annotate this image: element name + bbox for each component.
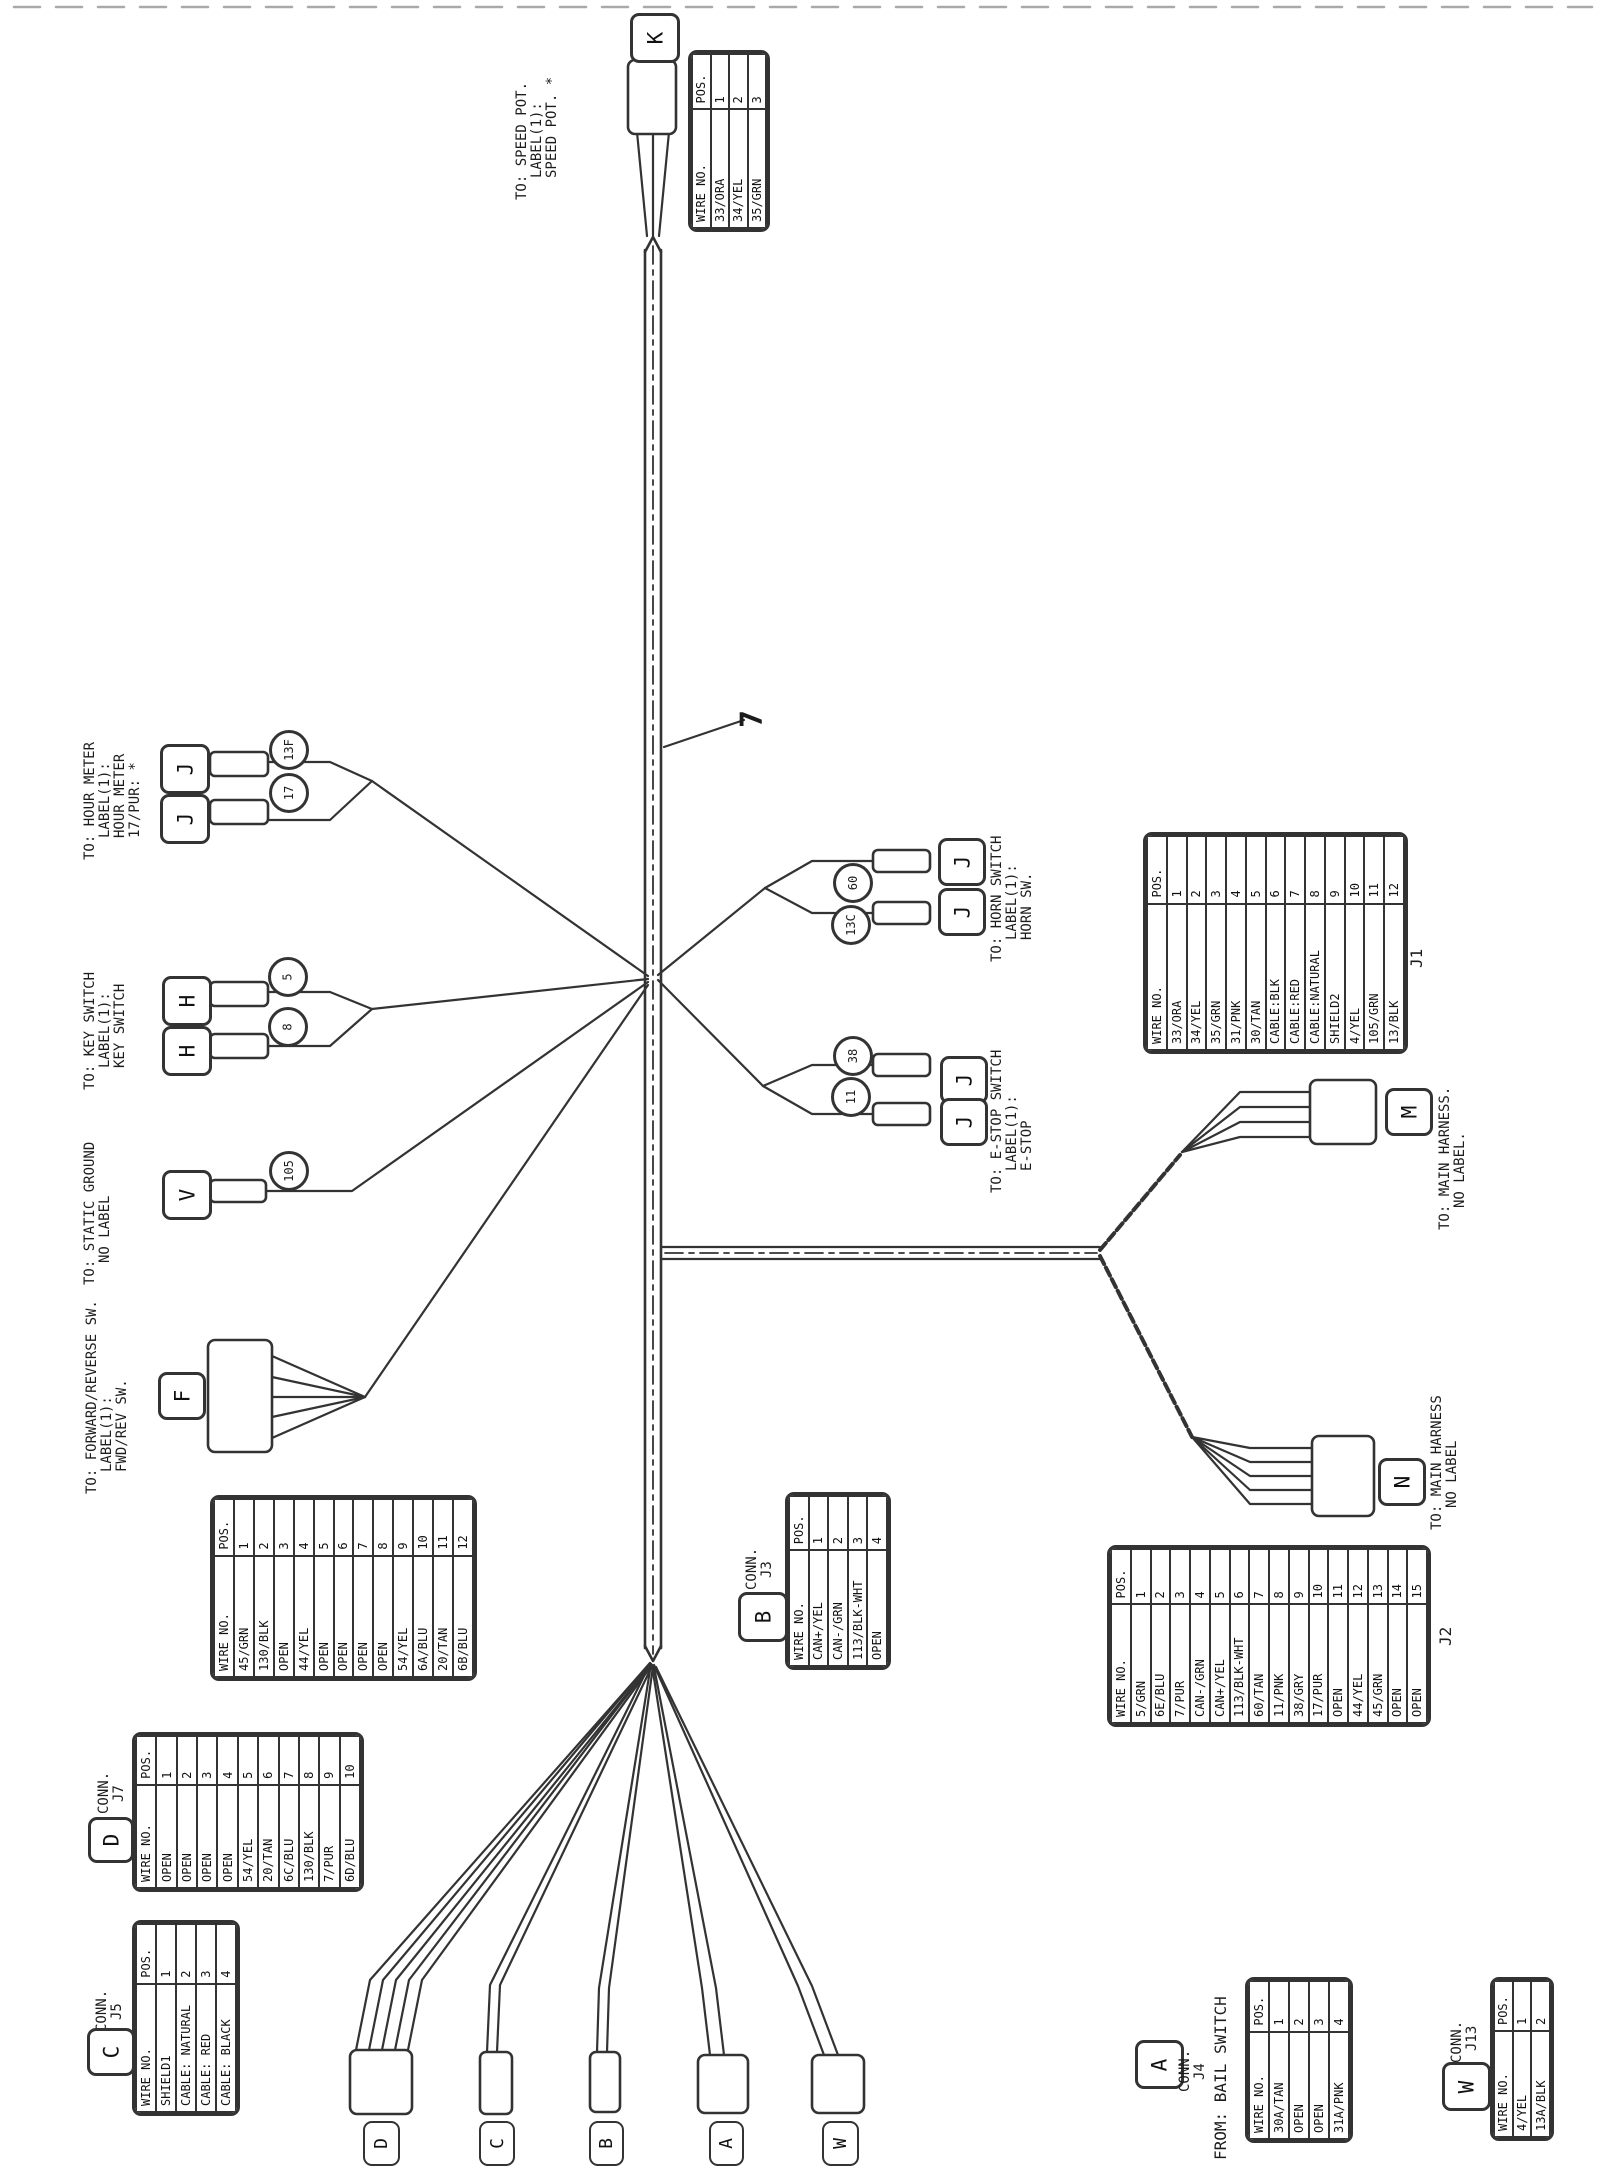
connector-b-body <box>590 2052 620 2112</box>
ring-terminal-17: 17 <box>269 773 309 813</box>
j1-table-title: J1 <box>1408 918 1436 968</box>
wire-table-cell: 9 <box>1289 1549 1309 1604</box>
label-line: TO: STATIC GROUND <box>83 1120 98 1285</box>
wire-table-cell: 20/TAN <box>258 1785 278 1888</box>
connector-letter: W <box>830 2138 851 2149</box>
connector-box-h-2: H <box>162 1026 212 1076</box>
main-harness-n-label: TO: MAIN HARNESSNO LABEL <box>1430 1342 1472 1530</box>
wire-table-cell: 13 <box>1368 1549 1388 1604</box>
wire-table-cell: 7 <box>353 1499 373 1556</box>
horn-branch <box>658 850 930 975</box>
k-wires <box>637 132 669 236</box>
wire-table-header-cell: WIRE NO. <box>136 1785 156 1888</box>
connector-letter: A <box>1148 2058 1172 2071</box>
key-switch-label: TO: KEY SWITCHLABEL(1):KEY SWITCH <box>83 932 135 1090</box>
wire-table-cell: 4 <box>294 1499 314 1556</box>
connector-letter: M <box>1397 1106 1421 1119</box>
wire-table-cell: 2 <box>1531 1981 1550 2031</box>
connector-letter: H <box>175 1045 199 1058</box>
wire-table-cell: 7 <box>279 1736 299 1785</box>
wire-table-cell: 30A/TAN <box>1269 2032 1289 2139</box>
n-connector-body <box>1312 1436 1374 1516</box>
wire-table-cell: 4/YEL <box>1345 904 1365 1050</box>
wire-table-header-cell: WIRE NO. <box>1147 904 1167 1050</box>
wire-table-header-cell: POS. <box>136 1924 156 1984</box>
wire-table-cell: 45/GRN <box>234 1556 254 1677</box>
connector-letter: J <box>952 1116 976 1129</box>
wire-table-cell: 11 <box>1364 836 1384 904</box>
wire-table-cell: 1 <box>1167 836 1187 904</box>
wire-table-cell: 11 <box>433 1499 453 1556</box>
wire-table-cell: CAN+/YEL <box>1210 1604 1230 1723</box>
connector-letter: A <box>716 2138 737 2149</box>
fwd-rev-branch <box>272 985 648 1438</box>
conn-j3-label: CONN.J3 <box>745 1524 779 1590</box>
label-line: J7 <box>112 1750 127 1814</box>
label-line: TO: MAIN HARNESS <box>1430 1342 1445 1530</box>
label-line: FWD/REV SW. <box>115 1292 130 1494</box>
wire-table-cell: 6 <box>1266 836 1286 904</box>
connector-box-f: F <box>158 1372 206 1420</box>
label-line: NO LABEL <box>1445 1342 1460 1530</box>
wire-table-cell: CABLE:BLK <box>1266 904 1286 1050</box>
wire-table-cell: 4/YEL <box>1513 2031 1532 2137</box>
wire-table-header-cell: POS. <box>1249 1981 1269 2032</box>
fwd-rev-label: TO: FORWARD/REVERSE SW.LABEL(1):FWD/REV … <box>85 1292 137 1494</box>
wire-table-cell: 1 <box>1269 1981 1289 2032</box>
bottom-connector-label-a: A <box>709 2121 744 2166</box>
wire-table-cell: 33/ORA <box>1167 904 1187 1050</box>
wire-table-header-cell: WIRE NO. <box>789 1550 809 1666</box>
wire-table-cell: 8 <box>1305 836 1325 904</box>
label-line: CONN. <box>95 1968 110 2032</box>
wire-table-cell: OPEN <box>867 1550 887 1666</box>
wire-table-header-cell: POS. <box>136 1736 156 1785</box>
wire-table-header-cell: WIRE NO. <box>136 1984 156 2112</box>
wire-table-cell: 1 <box>1131 1549 1151 1604</box>
label-line: LABEL(1): <box>98 702 113 860</box>
label-line: CONN. <box>1450 1995 1465 2063</box>
j7-wire-table: WIRE NO.POS.OPEN1OPEN2OPEN3OPEN454/YEL52… <box>132 1732 364 1892</box>
wire-table-cell: 45/GRN <box>1368 1604 1388 1723</box>
wire-table-cell: 4 <box>1226 836 1246 904</box>
wire-table-cell: OPEN <box>156 1785 176 1888</box>
ring-number: 105 <box>282 1160 296 1182</box>
wire-table-cell: OPEN <box>1328 1604 1348 1723</box>
label-line: SPEED POT. * <box>545 30 560 200</box>
wire-table-cell: 7/PUR <box>319 1785 339 1888</box>
wire-table-cell: 10 <box>1345 836 1365 904</box>
wire-table-cell: 5 <box>238 1736 258 1785</box>
wire-table-cell: 54/YEL <box>238 1785 258 1888</box>
wire-table-cell: 6B/BLU <box>453 1556 473 1677</box>
ring-number: 17 <box>282 786 296 800</box>
wire-table-header-cell: WIRE NO. <box>1494 2031 1513 2137</box>
connector-box-n: N <box>1378 1458 1426 1506</box>
ring-number: 8 <box>281 1023 295 1030</box>
wire-table-header-cell: POS. <box>1494 1981 1513 2031</box>
connector-letter: K <box>643 32 667 45</box>
label-line: J5 <box>110 1968 125 2032</box>
wire-table-cell: CABLE: NATURAL <box>176 1984 196 2112</box>
wire-table-cell: 3 <box>1170 1549 1190 1604</box>
wire-table: WIRE NO.POS.30A/TAN1OPEN2OPEN331A/PNK4 <box>1248 1980 1350 2140</box>
wire-table-cell: 3 <box>196 1924 216 1984</box>
wire-table-cell: 5 <box>1210 1549 1230 1604</box>
bottom-fan <box>356 1663 838 2055</box>
connector-letter: B <box>751 1611 775 1624</box>
wire-table-cell: 12 <box>1384 836 1404 904</box>
wire-table-cell: 3 <box>1206 836 1226 904</box>
bottom-connector-bodies <box>350 2050 864 2114</box>
wire-table-cell: CABLE:RED <box>1285 904 1305 1050</box>
connector-box-j-horn-2: J <box>938 888 986 936</box>
wire-table-cell: SHIELD1 <box>156 1984 176 2112</box>
wire-table-cell: 2 <box>828 1496 848 1550</box>
label-line: TO: MAIN HARNESS. <box>1438 1025 1453 1230</box>
wire-table-cell: 35/GRN <box>1206 904 1226 1050</box>
connector-w-body <box>812 2055 864 2113</box>
wire-table-cell: 12 <box>1348 1549 1368 1604</box>
ring-number: 11 <box>844 1090 858 1104</box>
hour-meter-label: TO: HOUR METERLABEL(1):HOUR METER17/PUR:… <box>83 702 149 860</box>
label-line: CONN. <box>97 1750 112 1814</box>
wire-table-cell: 3 <box>1309 1981 1329 2032</box>
bottom-connector-label-c: C <box>479 2121 515 2166</box>
wire-table-cell: 6E/BLU <box>1151 1604 1171 1723</box>
m-connector-body <box>1310 1080 1376 1144</box>
label-line: E-STOP <box>1020 1048 1035 1193</box>
wire-table: WIRE NO.POS.33/ORA134/YEL235/GRN3 <box>691 53 767 229</box>
wire-table-cell: 2 <box>1289 1981 1309 2032</box>
wire-table-cell: CABLE: RED <box>196 1984 216 2112</box>
wire-table-cell: 17/PUR <box>1309 1604 1329 1723</box>
label-line: LABEL(1): <box>1005 812 1020 962</box>
wire-table-cell: 3 <box>197 1736 217 1785</box>
wire-table-cell: OPEN <box>274 1556 294 1677</box>
wire-table-cell: CAN-/GRN <box>1190 1604 1210 1723</box>
wire-table-cell: 31A/PNK <box>1329 2032 1349 2139</box>
wire-table-cell: 60/TAN <box>1249 1604 1269 1723</box>
wire-table-cell: 4 <box>1190 1549 1210 1604</box>
connector-a-body <box>698 2055 748 2113</box>
wire-table-cell: 2 <box>1151 1549 1171 1604</box>
k-connector-body <box>628 60 676 134</box>
wire-table-cell: OPEN <box>334 1556 354 1677</box>
main-harness-m-label: TO: MAIN HARNESS.NO LABEL. <box>1438 1025 1480 1230</box>
connector-letter: W <box>1455 2080 1479 2093</box>
connector-box-j-hour-meter-1: J <box>160 744 210 794</box>
wire-table-cell: 1 <box>234 1499 254 1556</box>
wire-table-cell: 35/GRN <box>748 109 767 228</box>
wire-table-cell: 4 <box>867 1496 887 1550</box>
wire-table-cell: 10 <box>413 1499 433 1556</box>
label-line: TO: HOUR METER <box>83 702 98 860</box>
connector-letter: D <box>371 2138 392 2149</box>
label-line: TO: FORWARD/REVERSE SW. <box>85 1292 100 1494</box>
wire-table-cell: OPEN <box>177 1785 197 1888</box>
label-line: TO: SPEED POT. <box>515 30 530 200</box>
wire-table-cell: OPEN <box>314 1556 334 1677</box>
static-ground-label: TO: STATIC GROUNDNO LABEL <box>83 1120 123 1285</box>
label-line: HOUR METER <box>113 702 128 860</box>
wire-table-cell: 7 <box>1285 836 1305 904</box>
ring-number: 38 <box>846 1049 860 1063</box>
wire-table-cell: 113/BLK-WHT <box>1230 1604 1250 1723</box>
j13-wire-table: WIRE NO.POS.4/YEL113A/BLK2 <box>1490 1977 1554 2141</box>
wire-table-cell: 6 <box>334 1499 354 1556</box>
conn-j5-label: CONN.J5 <box>95 1968 129 2032</box>
f-connector-body <box>208 1340 272 1452</box>
wire-table-cell: SHIELD2 <box>1325 904 1345 1050</box>
label-line: LABEL(1): <box>98 932 113 1090</box>
wire-table-cell: OPEN <box>1388 1604 1408 1723</box>
wire-table-cell: OPEN <box>217 1785 237 1888</box>
ring-number: 13C <box>844 914 858 936</box>
wire-table-cell: 11/PNK <box>1269 1604 1289 1723</box>
wire-table-cell: OPEN <box>1289 2032 1309 2139</box>
speed-pot-label: TO: SPEED POT.LABEL(1):SPEED POT. * <box>515 30 610 200</box>
connector-letter: J <box>173 763 197 776</box>
wire-table-cell: 12 <box>453 1499 473 1556</box>
estop-branch <box>658 980 930 1125</box>
ring-terminal-38: 38 <box>833 1036 873 1076</box>
connector-box-j-horn-1: J <box>938 838 986 886</box>
j3-wire-table: WIRE NO.POS.CAN+/YEL1CAN-/GRN2113/BLK-WH… <box>785 1492 891 1670</box>
wire-table-cell: 44/YEL <box>294 1556 314 1677</box>
label-line: LABEL(1): <box>530 30 545 200</box>
wire-table-cell: 10 <box>1309 1549 1329 1604</box>
conn-j4-label: CONN.J4 <box>1178 2028 1212 2092</box>
ring-terminal-105: 105 <box>269 1151 309 1191</box>
wire-table-header-cell: POS. <box>1111 1549 1131 1604</box>
wire-table-cell: 4 <box>1329 1981 1349 2032</box>
connector-letter: J <box>950 856 974 869</box>
label-line: TO: HORN SWITCH <box>990 812 1005 962</box>
ring-terminal-8: 8 <box>268 1007 308 1047</box>
wire-table-header-cell: WIRE NO. <box>1249 2032 1269 2139</box>
label-line: J13 <box>1465 1995 1480 2063</box>
bottom-connector-label-d: D <box>363 2121 400 2166</box>
wire-table-cell: 1 <box>156 1736 176 1785</box>
wire-table-cell: 13A/BLK <box>1531 2031 1550 2137</box>
wire-table-cell: 1 <box>711 54 730 109</box>
speed-pot-wire-table: WIRE NO.POS.33/ORA134/YEL235/GRN3 <box>688 50 770 232</box>
wire-table-cell: CABLE: BLACK <box>216 1984 236 2112</box>
wire-table-cell: 9 <box>1325 836 1345 904</box>
wire-table-cell: 11 <box>1328 1549 1348 1604</box>
connector-letter: D <box>99 1834 123 1847</box>
wire-table-cell: 5 <box>1246 836 1266 904</box>
wire-table-cell: 13/BLK <box>1384 904 1404 1050</box>
connector-letter: J <box>952 1074 976 1087</box>
label-line: LABEL(1): <box>1005 1048 1020 1193</box>
connector-box-j-estop-2: J <box>940 1098 988 1146</box>
connector-letter: C <box>99 2046 123 2059</box>
label-line: NO LABEL. <box>1453 1025 1468 1230</box>
connector-box-k: K <box>630 13 680 63</box>
connector-box-d-table: D <box>88 1817 134 1863</box>
connector-letter: J <box>950 906 974 919</box>
figure-leader <box>664 720 744 747</box>
connector-letter: F <box>170 1390 194 1403</box>
wire-table-cell: 9 <box>319 1736 339 1785</box>
label-line: 17/PUR: * <box>128 702 143 860</box>
connector-letter: J <box>173 813 197 826</box>
wire-table-cell: 10 <box>340 1736 360 1785</box>
wire-table-cell: CAN-/GRN <box>828 1550 848 1666</box>
wire-table-cell: 20/TAN <box>433 1556 453 1677</box>
ring-terminal-13c: 13C <box>831 905 871 945</box>
label-line: CONN. <box>1178 2028 1193 2092</box>
label-line: TO: KEY SWITCH <box>83 932 98 1090</box>
connector-box-c-table: C <box>87 2028 135 2076</box>
wire-table-cell: 1 <box>1513 1981 1532 2031</box>
wire-table-header-cell: WIRE NO. <box>692 109 711 228</box>
connector-box-b: B <box>738 1592 788 1642</box>
horn-label: TO: HORN SWITCHLABEL(1):HORN SW. <box>990 812 1044 962</box>
wire-table-header-cell: WIRE NO. <box>1111 1604 1131 1723</box>
wire-table-cell: 33/ORA <box>711 109 730 228</box>
label-line: J4 <box>1193 2028 1208 2092</box>
j2-table-title: J2 <box>1437 1596 1465 1646</box>
wire-table-cell: 14 <box>1388 1549 1408 1604</box>
bail-switch-label: FROM: BAIL SWITCH <box>1212 1956 1236 2160</box>
wire-table-cell: CABLE:NATURAL <box>1305 904 1325 1050</box>
j2-wire-table: WIRE NO.POS.5/GRN16E/BLU27/PUR3CAN-/GRN4… <box>1107 1545 1431 1727</box>
ring-number: 13F <box>282 739 296 761</box>
wire-table-cell: 1 <box>156 1924 176 1984</box>
figure-number: 7 <box>735 692 767 728</box>
label-line: J3 <box>760 1524 775 1590</box>
conn-j13-label: CONN.J13 <box>1450 1995 1484 2063</box>
wire-table-header-cell: POS. <box>692 54 711 109</box>
wire-table-cell: 130/BLK <box>299 1785 319 1888</box>
connector-box-h-1: H <box>162 976 212 1026</box>
wire-table-cell: 3 <box>274 1499 294 1556</box>
estop-label: TO: E-STOP SWITCHLABEL(1):E-STOP <box>990 1048 1044 1193</box>
wire-table-cell: 30/TAN <box>1246 904 1266 1050</box>
connector-box-v: V <box>162 1170 212 1220</box>
wire-table-cell: 34/YEL <box>1187 904 1207 1050</box>
wire-table-cell: 6A/BLU <box>413 1556 433 1677</box>
bottom-connector-label-w: W <box>822 2121 859 2166</box>
wire-table-header-cell: POS. <box>789 1496 809 1550</box>
wire-table-cell: 8 <box>299 1736 319 1785</box>
wire-table-cell: OPEN <box>353 1556 373 1677</box>
j5-wire-table: WIRE NO.POS.SHIELD11CABLE: NATURAL2CABLE… <box>132 1920 240 2116</box>
wire-table-cell: 15 <box>1407 1549 1427 1604</box>
connector-letter: H <box>175 995 199 1008</box>
connector-d-body <box>350 2050 412 2114</box>
wire-table-cell: 1 <box>809 1496 829 1550</box>
wire-table-cell: 7 <box>1249 1549 1269 1604</box>
wire-table: WIRE NO.POS.CAN+/YEL1CAN-/GRN2113/BLK-WH… <box>788 1495 888 1667</box>
connector-box-w-table: W <box>1442 2062 1491 2111</box>
label-line: KEY SWITCH <box>113 932 128 1090</box>
bottom-connector-label-b: B <box>589 2121 624 2166</box>
connector-letter: V <box>175 1189 199 1202</box>
wire-table-cell: 113/BLK-WHT <box>848 1550 868 1666</box>
wire-table-cell: 105/GRN <box>1364 904 1384 1050</box>
wire-table-cell: 9 <box>393 1499 413 1556</box>
wire-table: WIRE NO.POS.4/YEL113A/BLK2 <box>1493 1980 1551 2138</box>
wire-table-cell: 6D/BLU <box>340 1785 360 1888</box>
wire-table-cell: 2 <box>177 1736 197 1785</box>
ring-terminal-5: 5 <box>268 957 308 997</box>
label-line: TO: E-STOP SWITCH <box>990 1048 1005 1193</box>
wire-table-cell: 44/YEL <box>1348 1604 1368 1723</box>
wire-table: WIRE NO.POS.5/GRN16E/BLU27/PUR3CAN-/GRN4… <box>1110 1548 1428 1724</box>
connector-c-body <box>480 2052 512 2114</box>
fwd-rev-wire-table: WIRE NO.POS.45/GRN1130/BLK2OPEN344/YEL4O… <box>210 1495 477 1681</box>
wire-table-cell: 34/YEL <box>729 109 748 228</box>
wire-table-header-cell: POS. <box>1147 836 1167 904</box>
wire-table-cell: 6 <box>258 1736 278 1785</box>
wire-table-cell: 31/PNK <box>1226 904 1246 1050</box>
ring-number: 5 <box>281 973 295 980</box>
ring-number: 60 <box>846 876 860 890</box>
wire-table: WIRE NO.POS.33/ORA134/YEL235/GRN331/PNK4… <box>1146 835 1405 1051</box>
wire-table: WIRE NO.POS.OPEN1OPEN2OPEN3OPEN454/YEL52… <box>135 1735 361 1889</box>
wire-table-header-cell: WIRE NO. <box>214 1556 234 1677</box>
connector-box-j-estop-1: J <box>940 1056 988 1104</box>
harness-diagram: TO: SPEED POT.LABEL(1):SPEED POT. * K WI… <box>0 0 1600 2184</box>
wire-table-cell: 130/BLK <box>254 1556 274 1677</box>
wire-table-cell: 6 <box>1230 1549 1250 1604</box>
wire-table-cell: OPEN <box>373 1556 393 1677</box>
wire-table-cell: 8 <box>1269 1549 1289 1604</box>
wire-table-cell: 5/GRN <box>1131 1604 1151 1723</box>
wire-table-cell: 2 <box>729 54 748 109</box>
j1-wire-table: WIRE NO.POS.33/ORA134/YEL235/GRN331/PNK4… <box>1143 832 1408 1054</box>
wire-table-cell: CAN+/YEL <box>809 1550 829 1666</box>
wire-table-cell: 38/GRY <box>1289 1604 1309 1723</box>
wire-table-cell: 2 <box>254 1499 274 1556</box>
connector-letter: N <box>1390 1476 1414 1489</box>
wire-table-cell: 7/PUR <box>1170 1604 1190 1723</box>
label-line: NO LABEL <box>98 1120 113 1285</box>
wire-table-cell: OPEN <box>1309 2032 1329 2139</box>
j4-wire-table: WIRE NO.POS.30A/TAN1OPEN2OPEN331A/PNK4 <box>1245 1977 1353 2143</box>
wire-table-cell: OPEN <box>197 1785 217 1888</box>
ring-terminal-11: 11 <box>831 1077 871 1117</box>
ring-terminal-13f: 13F <box>269 730 309 770</box>
label-line: LABEL(1): <box>100 1292 115 1494</box>
wire-table: WIRE NO.POS.45/GRN1130/BLK2OPEN344/YEL4O… <box>213 1498 474 1678</box>
wire-table-cell: 3 <box>748 54 767 109</box>
wire-table: WIRE NO.POS.SHIELD11CABLE: NATURAL2CABLE… <box>135 1923 237 2113</box>
connector-letter: B <box>596 2138 617 2149</box>
conn-j7-label: CONN.J7 <box>97 1750 131 1814</box>
wire-table-cell: 8 <box>373 1499 393 1556</box>
wire-table-cell: 4 <box>217 1736 237 1785</box>
wire-table-cell: 4 <box>216 1924 236 1984</box>
wire-table-cell: OPEN <box>1407 1604 1427 1723</box>
label-line: HORN SW. <box>1020 812 1035 962</box>
wire-table-cell: 2 <box>1187 836 1207 904</box>
wire-table-cell: 2 <box>176 1924 196 1984</box>
ring-terminal-60: 60 <box>833 863 873 903</box>
connector-letter: C <box>487 2138 508 2149</box>
connector-box-m: M <box>1385 1088 1433 1136</box>
mn-branch <box>661 1092 1312 1504</box>
wire-table-cell: 3 <box>848 1496 868 1550</box>
label-line: CONN. <box>745 1524 760 1590</box>
wire-table-cell: 5 <box>314 1499 334 1556</box>
connector-box-j-hour-meter-2: J <box>160 794 210 844</box>
wire-table-header-cell: POS. <box>214 1499 234 1556</box>
